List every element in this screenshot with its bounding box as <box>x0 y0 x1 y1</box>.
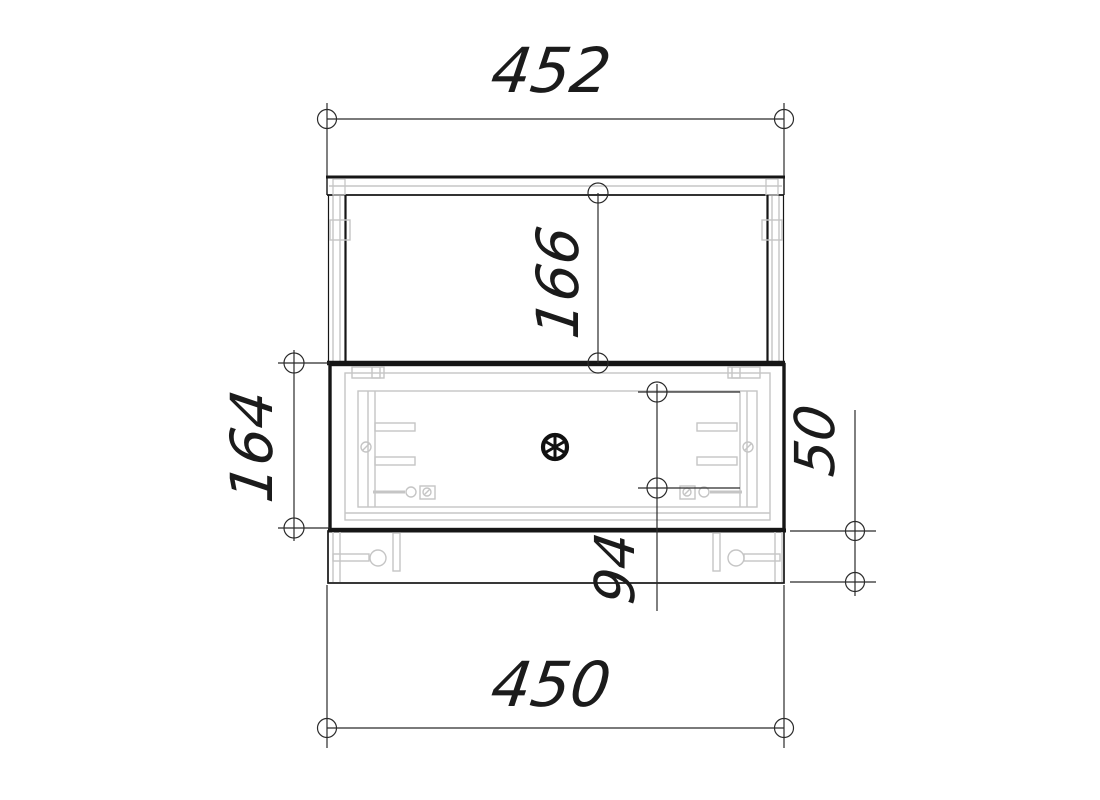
dimension-94 <box>638 382 740 611</box>
top-rail <box>326 176 785 195</box>
dimension-label-50: 50 <box>784 401 848 480</box>
dimension-label-166: 166 <box>524 222 592 342</box>
bottom-rail-hardware <box>333 532 782 582</box>
dimension-label-164: 164 <box>218 386 286 506</box>
dimension-label-94: 94 <box>584 529 648 608</box>
knob-wheel-icon <box>543 435 567 459</box>
bottom-rail <box>328 531 784 583</box>
dimension-452 <box>318 103 794 176</box>
drawer-hardware <box>345 367 770 520</box>
dimension-label-450: 450 <box>487 648 616 721</box>
drawing-sheet: 452 166 164 94 50 450 <box>0 0 1100 800</box>
technical-drawing: 452 166 164 94 50 450 <box>0 0 1100 800</box>
dimension-label-452: 452 <box>487 34 616 107</box>
drawer-compartment <box>328 365 786 531</box>
